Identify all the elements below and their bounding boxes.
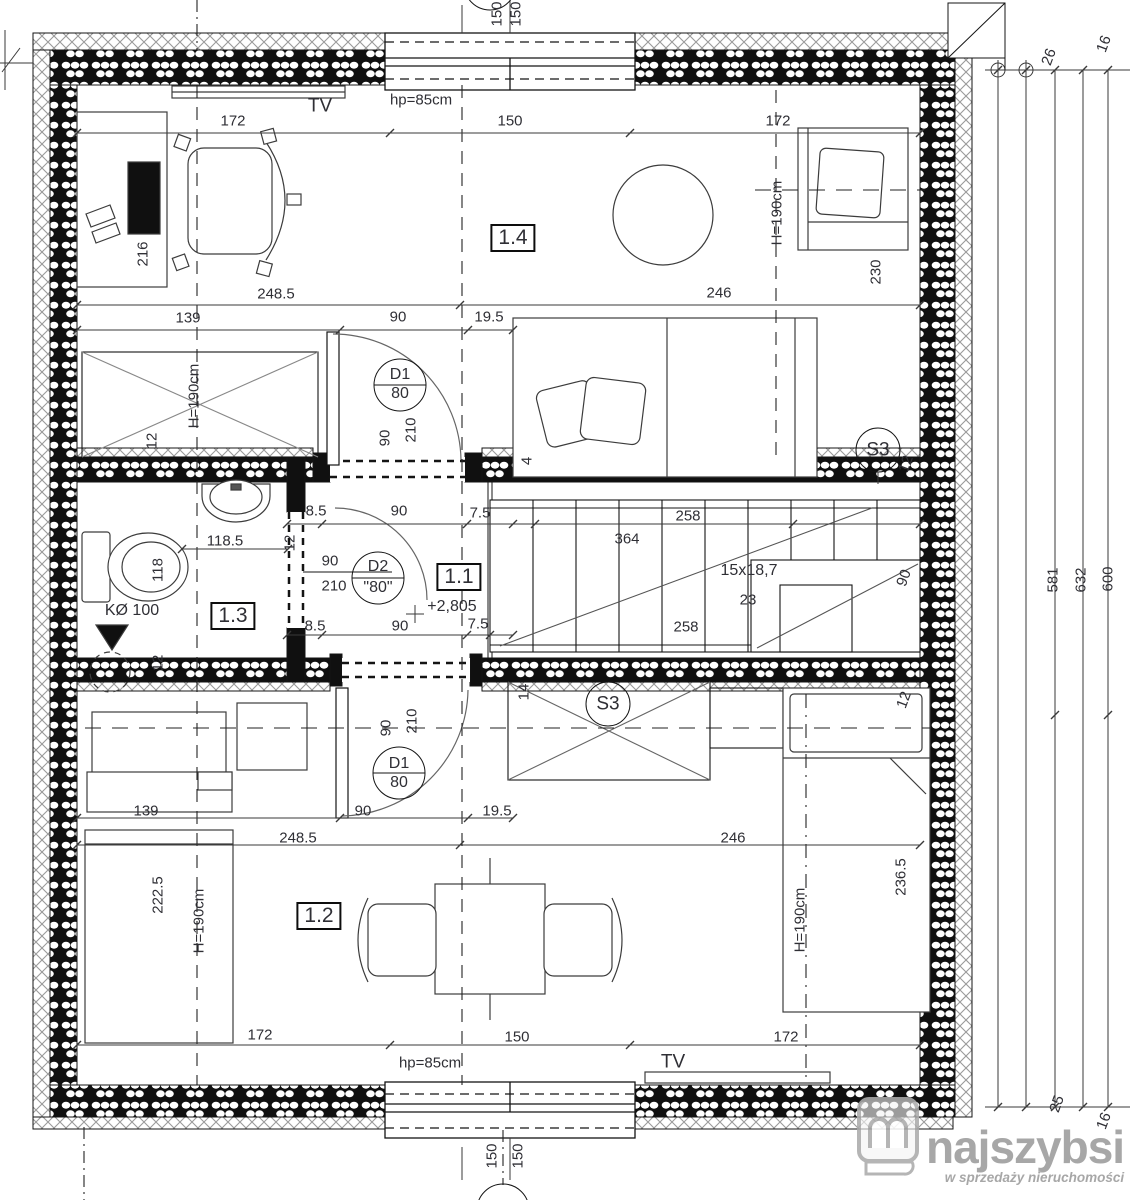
dim-246-bottom: 246: [720, 831, 745, 846]
dim-12-left-top: 12: [145, 433, 160, 450]
dim-26-top-right: 26: [1039, 47, 1059, 68]
axis-label-150-top-a: 150: [490, 1, 505, 26]
dim-23-stairs: 23: [740, 593, 757, 608]
dim-172-top-right: 172: [765, 114, 790, 129]
tv-label-bottom: TV: [661, 1053, 685, 1072]
skylight-tag-s3-right: S3: [866, 441, 889, 460]
dim-600: 600: [1101, 566, 1116, 591]
dim-90-door-top: 90: [378, 430, 393, 447]
dim-12-right-mid: 12: [894, 690, 914, 711]
dim-8-5-mid-top: 8.5: [306, 504, 327, 519]
drain-label: KØ 100: [105, 603, 159, 619]
dim-230: 230: [869, 259, 884, 284]
dim-h190-room14-left: H=190cm: [187, 364, 202, 429]
dim-90-top: 90: [390, 310, 407, 325]
room-label-1-3: 1.3: [210, 602, 255, 630]
door-tag-d2-size: "80": [363, 580, 392, 596]
dim-90-door-d2: 90: [322, 554, 339, 569]
dim-364-stairs: 364: [614, 532, 639, 547]
dim-172-bottom-right: 172: [773, 1030, 798, 1045]
dim-258-stairs-top: 258: [675, 509, 700, 524]
watermark-logo: najszybsi w sprzedaży nieruchomości: [856, 1096, 1130, 1196]
dim-248-5-bottom: 248.5: [279, 831, 317, 846]
dim-8-5-mid-bottom: 8.5: [305, 619, 326, 634]
logo-tagline: w sprzedaży nieruchomości: [926, 1170, 1124, 1185]
dim-12-bath: 12: [151, 655, 166, 672]
logo-brand: najszybsi: [926, 1127, 1124, 1168]
dim-139-top: 139: [175, 311, 200, 326]
axis-label-150-bottom-a: 150: [485, 1143, 500, 1168]
dim-stairs-steps: 15x18,7: [721, 563, 778, 579]
dim-12-partition: 12: [283, 535, 298, 552]
door-tag-d1-top-size: 80: [391, 386, 409, 402]
dim-16-top-right: 16: [1094, 34, 1114, 55]
dim-150-top: 150: [497, 114, 522, 129]
axis-label-150-bottom-b: 150: [511, 1143, 526, 1168]
dim-90-mid-top: 90: [391, 504, 408, 519]
room-label-1-4: 1.4: [490, 224, 535, 252]
parapet-label-top: hp=85cm: [390, 93, 452, 108]
dim-h190-room14-right: H=190cm: [770, 181, 785, 246]
dim-14-s3-mid: 14: [517, 684, 532, 701]
parapet-label-bottom: hp=85cm: [399, 1056, 461, 1071]
annotation-layer: 150150TVhp=85cm1721501722161.4H=190cmH=1…: [0, 0, 1130, 1200]
dim-7-5-mid-bottom: 7.5: [468, 617, 489, 632]
tv-label-top: TV: [308, 97, 332, 116]
dim-172-top-left: 172: [220, 114, 245, 129]
door-tag-d1-bottom-size: 80: [390, 775, 408, 791]
dim-210-door-d2: 210: [321, 579, 346, 594]
dim-248-5-top: 248.5: [257, 287, 295, 302]
dim-222-5: 222.5: [151, 876, 166, 914]
dim-4-bed: 4: [520, 457, 535, 465]
dim-118-5: 118.5: [207, 534, 243, 549]
dim-139-bottom: 139: [133, 804, 158, 819]
skylight-tag-s3-mid: S3: [596, 695, 619, 714]
dim-210-door-top: 210: [404, 417, 419, 442]
room-label-1-2: 1.2: [296, 902, 341, 930]
dim-90-mid-bottom: 90: [392, 619, 409, 634]
dim-118: 118: [151, 558, 166, 582]
logo-book-icon: [856, 1096, 922, 1185]
dim-h190-room12-right: H=190cm: [793, 888, 808, 953]
dim-h190-room12-left: H=190cm: [192, 889, 207, 954]
dim-150-bottom: 150: [504, 1030, 529, 1045]
floorplan-page: 150150TVhp=85cm1721501722161.4H=190cmH=1…: [0, 0, 1130, 1200]
dim-632: 632: [1074, 567, 1089, 592]
door-tag-d1-top: D1: [390, 367, 410, 383]
dim-90-bottom: 90: [355, 804, 372, 819]
dim-246-top: 246: [706, 286, 731, 301]
dim-236-5: 236.5: [894, 858, 909, 896]
level-mark: +2,805: [427, 599, 476, 615]
dim-19-5-top: 19.5: [474, 310, 503, 325]
door-tag-d2: D2: [368, 559, 388, 575]
dim-7-5-mid-top: 7.5: [470, 506, 491, 521]
dim-90-door-bottom: 90: [379, 720, 394, 737]
axis-label-150-top-b: 150: [509, 1, 524, 26]
dim-258-stairs-bottom: 258: [673, 620, 698, 635]
room-label-1-1: 1.1: [436, 563, 481, 591]
dim-19-5-bottom: 19.5: [482, 804, 511, 819]
dim-172-bottom-left: 172: [247, 1028, 272, 1043]
dim-581: 581: [1046, 567, 1061, 592]
dim-12-s3-right: 12: [896, 454, 916, 475]
dim-216: 216: [136, 241, 151, 266]
dim-90-stairs: 90: [894, 568, 914, 589]
door-tag-d1-bottom: D1: [389, 756, 409, 772]
dim-210-door-bottom: 210: [405, 708, 420, 733]
